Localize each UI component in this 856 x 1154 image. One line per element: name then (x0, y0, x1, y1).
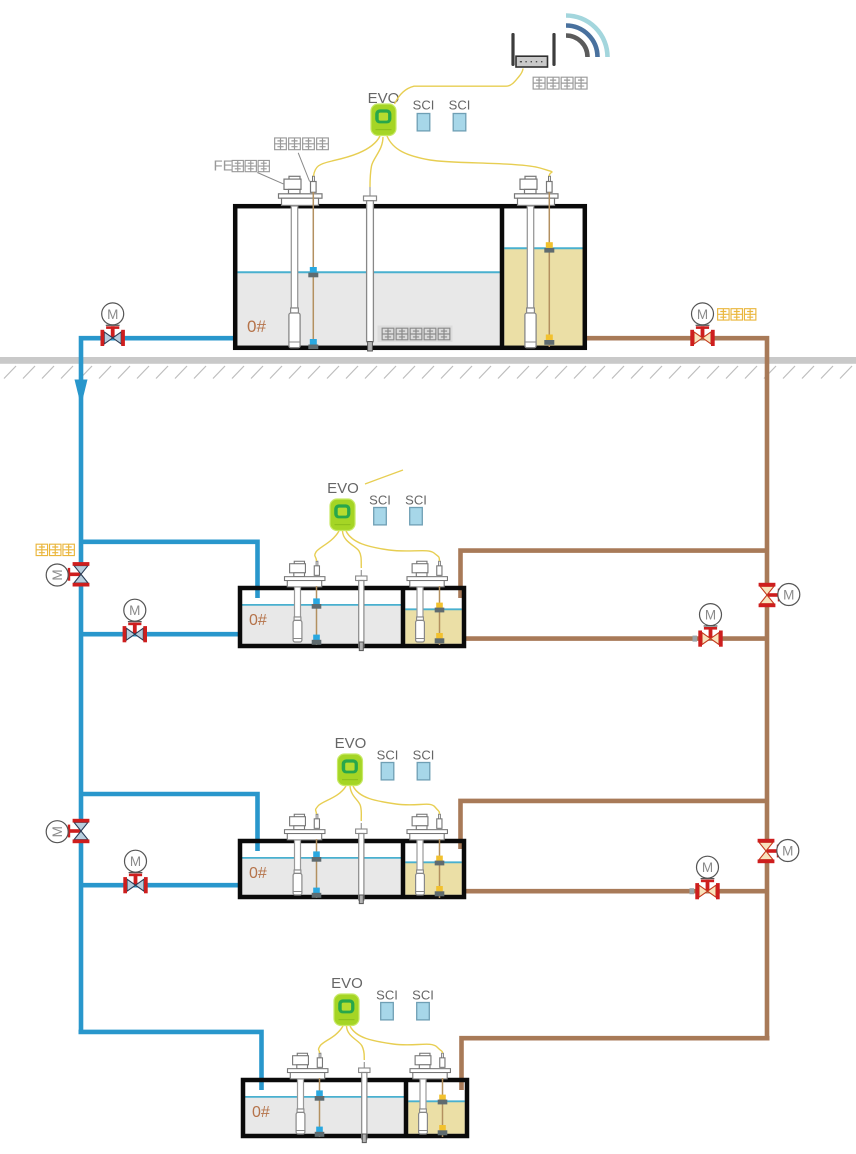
svg-text:SCI: SCI (413, 98, 435, 113)
svg-text:SCI: SCI (377, 748, 399, 763)
svg-text:EVO: EVO (327, 480, 359, 497)
svg-text:SCI: SCI (369, 493, 391, 508)
svg-text:0#: 0# (249, 612, 267, 629)
svg-text:SCI: SCI (449, 98, 471, 113)
svg-text:0#: 0# (249, 865, 267, 882)
svg-text:EVO: EVO (331, 975, 363, 992)
svg-text:SCI: SCI (413, 748, 435, 763)
svg-text:FE: FE (214, 158, 233, 175)
svg-text:0#: 0# (247, 317, 266, 336)
svg-text:EVO: EVO (368, 90, 400, 107)
svg-text:SCI: SCI (376, 988, 398, 1003)
svg-text:SCI: SCI (412, 988, 434, 1003)
svg-text:EVO: EVO (335, 735, 367, 752)
svg-text:SCI: SCI (405, 493, 427, 508)
svg-text:0#: 0# (252, 1104, 270, 1121)
